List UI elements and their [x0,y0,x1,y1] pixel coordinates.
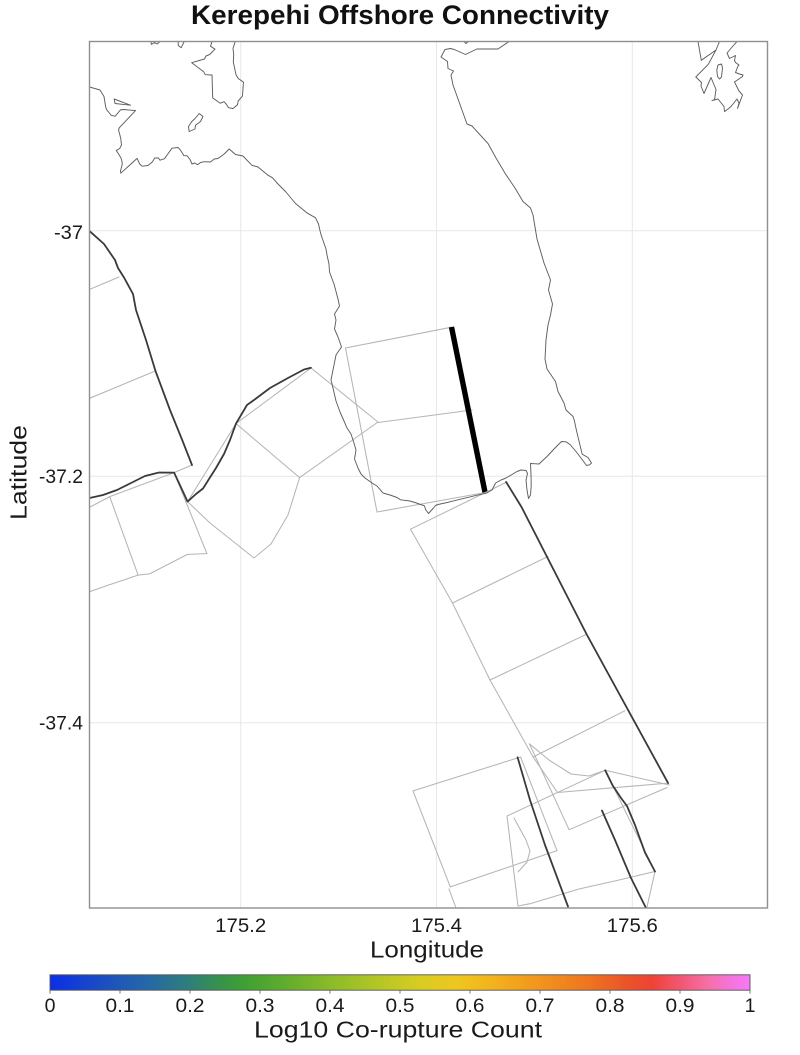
svg-text:0.8: 0.8 [596,995,625,1017]
svg-text:Log10 Co-rupture Count: Log10 Co-rupture Count [254,1017,543,1043]
svg-text:175.4: 175.4 [411,915,462,937]
svg-text:0.9: 0.9 [666,995,695,1017]
svg-text:-37.2: -37.2 [39,466,83,488]
svg-text:0: 0 [45,995,56,1017]
svg-text:175.6: 175.6 [607,915,658,937]
svg-text:-37.4: -37.4 [39,713,83,735]
svg-text:1: 1 [745,995,756,1017]
svg-text:0.3: 0.3 [246,995,275,1017]
svg-text:Latitude: Latitude [6,425,32,520]
svg-text:Kerepehi Offshore Connectivity: Kerepehi Offshore Connectivity [191,0,609,30]
svg-text:0.1: 0.1 [106,995,135,1017]
svg-text:0.7: 0.7 [526,995,555,1017]
svg-text:0.4: 0.4 [316,995,345,1017]
svg-text:-37: -37 [54,222,83,244]
svg-text:175.2: 175.2 [215,915,266,937]
svg-text:0.6: 0.6 [456,995,485,1017]
svg-text:0.2: 0.2 [176,995,205,1017]
svg-text:0.5: 0.5 [386,995,415,1017]
svg-text:Longitude: Longitude [370,937,484,963]
